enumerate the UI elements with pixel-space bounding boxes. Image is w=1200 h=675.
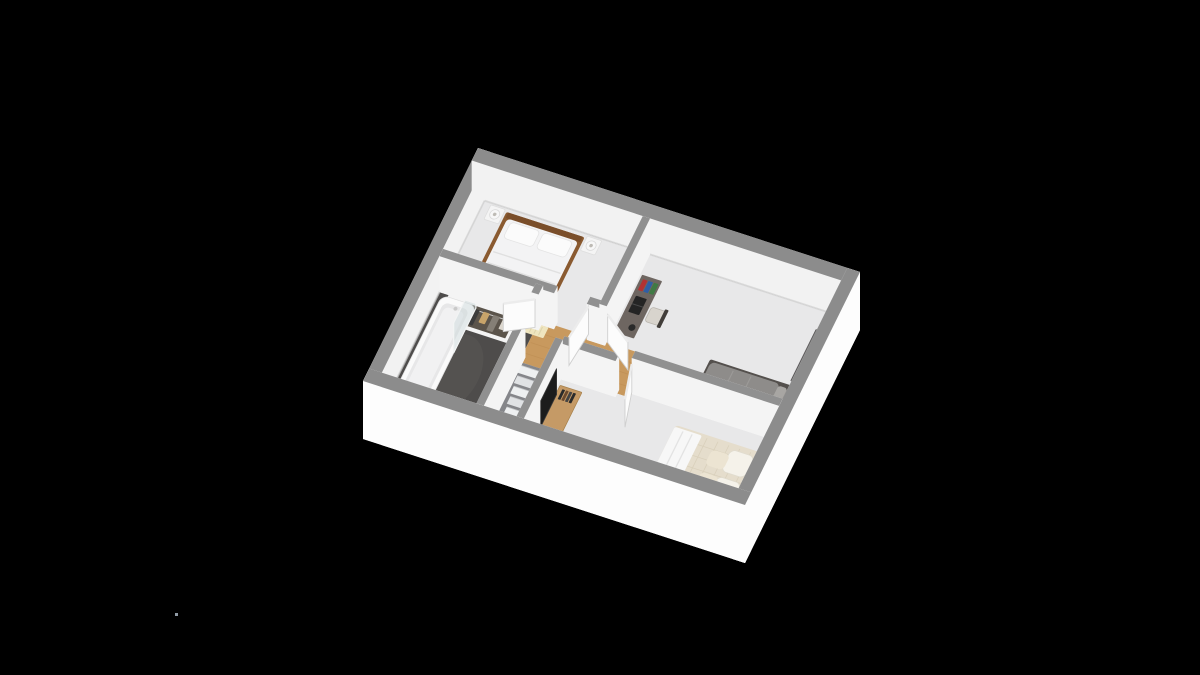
render-artifact-dot xyxy=(175,613,178,616)
door-bathroom xyxy=(503,299,535,331)
door-leaf xyxy=(503,299,535,331)
floor-plan-3d-render xyxy=(0,0,1200,675)
screenshot-root xyxy=(0,0,1200,675)
